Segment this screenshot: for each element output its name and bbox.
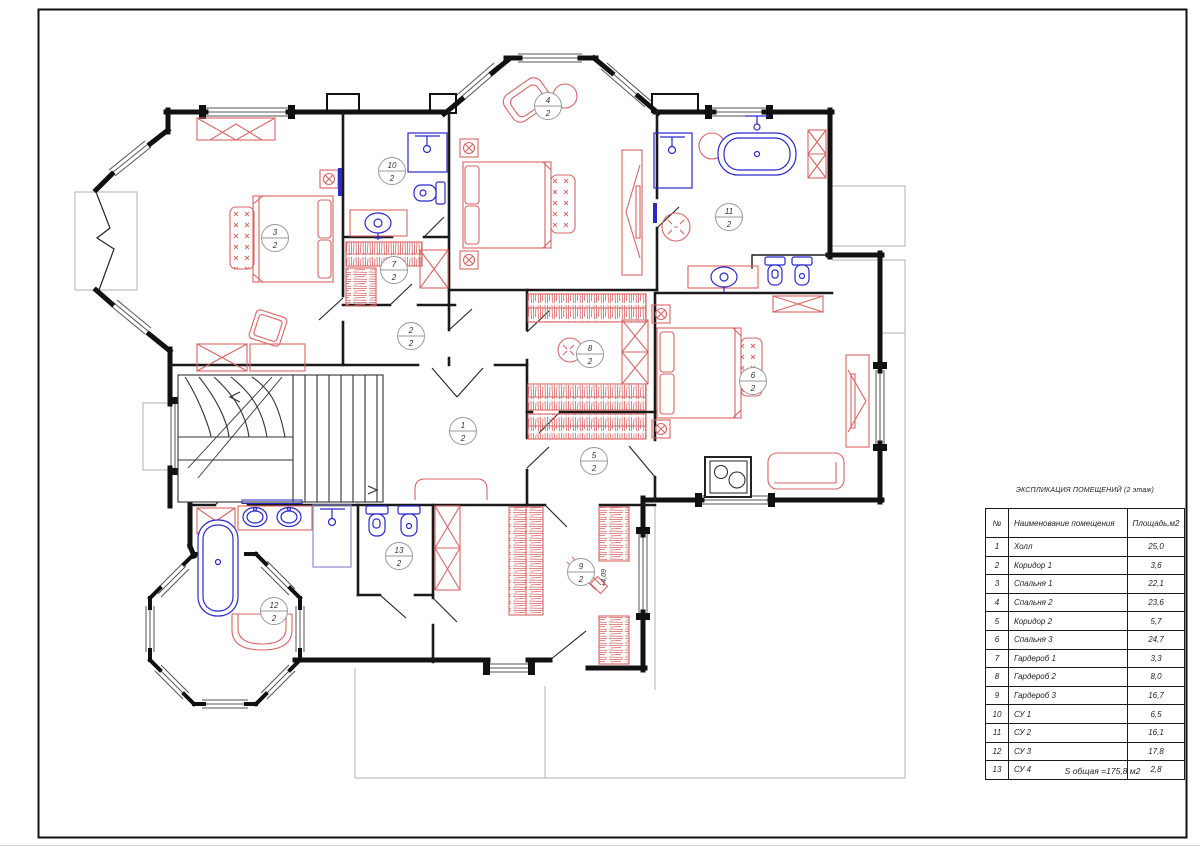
desk-bedroom1 <box>197 344 305 371</box>
svg-text:2: 2 <box>591 464 597 473</box>
legend-col-name: Наименование помещения <box>1009 509 1128 537</box>
room-num: 4 <box>986 594 1009 612</box>
legend-row-2: 2 Коридор 1 3,6 <box>986 556 1184 575</box>
tv-unit-bedroom2 <box>622 150 642 275</box>
room-num: 2 <box>986 557 1009 575</box>
svg-text:1: 1 <box>461 421 465 430</box>
room-num: 10 <box>986 705 1009 723</box>
room-num: 3 <box>986 575 1009 593</box>
counter-su1 <box>350 210 407 236</box>
svg-text:2: 2 <box>271 614 277 623</box>
svg-text:2: 2 <box>726 220 732 229</box>
room-marker-8: 82 <box>577 341 604 368</box>
room-marker-3: 32 <box>262 225 289 252</box>
svg-text:5: 5 <box>592 451 597 460</box>
svg-text:3: 3 <box>273 228 278 237</box>
room-num: 13 <box>986 761 1009 779</box>
svg-text:2: 2 <box>408 339 414 348</box>
svg-text:6: 6 <box>751 371 756 380</box>
legend-row-3: 3 Спальня 1 22,1 <box>986 574 1184 593</box>
room-name: СУ 3 <box>1009 743 1128 761</box>
room-marker-13: 132 <box>386 543 413 570</box>
bathtub-su3 <box>198 520 238 616</box>
nightstand-bedroom1 <box>320 170 338 188</box>
toilet-su4 <box>366 506 388 536</box>
legend-row-5: 5 Коридор 2 5,7 <box>986 611 1184 630</box>
legend-row-1: 1 Холл 25,0 <box>986 537 1184 556</box>
room-name: СУ 1 <box>1009 705 1128 723</box>
svg-text:2: 2 <box>587 357 593 366</box>
legend-row-9: 9 Гардероб 3 16,7 <box>986 686 1184 705</box>
svg-text:2: 2 <box>389 174 395 183</box>
room-name: Гардероб 1 <box>1009 650 1128 668</box>
mirror-su2 <box>653 203 657 223</box>
room-area: 3,6 <box>1128 561 1184 570</box>
bathtub-su2 <box>718 133 796 175</box>
room-marker-7: 72 <box>381 257 408 284</box>
legend-header-row: № Наименование помещения Площадь,м2 <box>986 509 1184 537</box>
rug-bedroom2 <box>551 175 575 233</box>
cabinet-x-su2 <box>808 130 826 178</box>
legend-row-4: 4 Спальня 2 23,6 <box>986 593 1184 612</box>
svg-text:2: 2 <box>391 273 397 282</box>
room-name: СУ 2 <box>1009 724 1128 742</box>
room-name: Гардероб 2 <box>1009 668 1128 686</box>
legend-col-area: Площадь,м2 <box>1128 519 1184 528</box>
cabinet-x-wardrobe1 <box>420 250 448 288</box>
svg-text:2: 2 <box>460 434 466 443</box>
room-num: 9 <box>986 687 1009 705</box>
room-marker-1: 12 <box>450 418 477 445</box>
legend-title: ЭКСПЛИКАЦИЯ ПОМЕЩЕНИЙ (2 этаж) <box>985 487 1185 494</box>
legend-table: № Наименование помещения Площадь,м2 1 Хо… <box>985 508 1185 780</box>
room-name: Спальня 2 <box>1009 594 1128 612</box>
room-name: Спальня 3 <box>1009 631 1128 649</box>
room-area: 6,5 <box>1128 710 1184 719</box>
room-marker-2: 22 <box>398 323 425 350</box>
tv-unit-bedroom3 <box>846 355 869 447</box>
dresser-bedroom1 <box>197 118 275 140</box>
svg-text:2: 2 <box>396 559 402 568</box>
svg-text:2: 2 <box>408 326 414 335</box>
svg-text:2: 2 <box>545 109 551 118</box>
rug-bedroom1 <box>230 207 254 269</box>
room-name: Гардероб 3 <box>1009 687 1128 705</box>
svg-text:10: 10 <box>388 161 397 170</box>
room-area: 22,1 <box>1128 579 1184 588</box>
room-name: Спальня 1 <box>1009 575 1128 593</box>
svg-text:2: 2 <box>272 241 278 250</box>
legend-row-12: 12 СУ 3 17,8 <box>986 742 1184 761</box>
legend-row-11: 11 СУ 2 16,1 <box>986 723 1184 742</box>
room-marker-12: 122 <box>261 598 288 625</box>
legend-row-6: 6 Спальня 3 24,7 <box>986 630 1184 649</box>
svg-text:8: 8 <box>588 344 593 353</box>
room-marker-10: 102 <box>379 158 406 185</box>
room-area: 3,3 <box>1128 654 1184 663</box>
drawing-sheet: 12 22 32 42 52 62 72 82 <box>0 0 1200 848</box>
room-area: 16,1 <box>1128 728 1184 737</box>
shower-su3 <box>313 505 351 567</box>
total-area-label: S общая =175,8 м2 <box>1020 766 1185 776</box>
chair-bedroom1 <box>248 309 288 347</box>
room-num: 1 <box>986 538 1009 556</box>
shower-su1 <box>408 133 447 172</box>
toilet-su2 <box>765 257 785 285</box>
shower-drain-su2 <box>662 213 690 241</box>
toilet-su1 <box>414 182 445 204</box>
room-marker-6: 62 <box>740 368 767 395</box>
room-marker-11: 112 <box>716 204 743 231</box>
room-name: Коридор 2 <box>1009 612 1128 630</box>
stairs <box>178 375 383 502</box>
sink-su3-right <box>277 508 301 527</box>
nightstand-bedroom2-a <box>460 139 478 157</box>
legend-row-7: 7 Гардероб 1 3,3 <box>986 649 1184 668</box>
cabinet-x-wardrobe2 <box>622 320 648 384</box>
counter-su2 <box>688 266 758 288</box>
wall-break-symbol <box>96 192 114 290</box>
room-name: Холл <box>1009 538 1128 556</box>
nightstand-bedroom2-b <box>460 251 478 269</box>
sofa-bedroom3 <box>768 453 844 489</box>
room-num: 12 <box>986 743 1009 761</box>
room-num: 11 <box>986 724 1009 742</box>
mixer-su2-wall <box>745 116 769 130</box>
bench-hall <box>415 479 487 500</box>
room-num: 5 <box>986 612 1009 630</box>
svg-text:12: 12 <box>270 601 279 610</box>
room-marker-9: 92 <box>568 559 595 586</box>
svg-text:4: 4 <box>546 96 551 105</box>
legend-col-num: № <box>986 509 1009 537</box>
room-name: Коридор 1 <box>1009 557 1128 575</box>
cabinet-x-bedroom3-cross <box>773 296 823 312</box>
cabinet-x-wardrobe3 <box>435 506 460 590</box>
room-area: 8,0 <box>1128 672 1184 681</box>
rack-wardrobe1-left <box>346 268 376 306</box>
legend-row-8: 8 Гардероб 2 8,0 <box>986 667 1184 686</box>
room-marker-4: 42 <box>535 93 562 120</box>
svg-text:2: 2 <box>578 575 584 584</box>
room-area: 16,7 <box>1128 691 1184 700</box>
room-area: 17,8 <box>1128 747 1184 756</box>
room-num: 6 <box>986 631 1009 649</box>
bidet-su4 <box>398 506 420 536</box>
svg-text:7: 7 <box>392 260 397 269</box>
shower-su2 <box>654 133 692 188</box>
legend-row-10: 10 СУ 1 6,5 <box>986 704 1184 723</box>
bed-bedroom3 <box>657 328 741 418</box>
room-num: 8 <box>986 668 1009 686</box>
room-area: 24,7 <box>1128 635 1184 644</box>
svg-text:9: 9 <box>579 562 584 571</box>
room-marker-5: 52 <box>581 448 608 475</box>
rack-wardrobe3-se <box>599 616 629 664</box>
svg-text:2: 2 <box>750 384 756 393</box>
svg-text:13: 13 <box>395 546 404 555</box>
bidet-su2 <box>792 257 812 285</box>
room-area: 23,6 <box>1128 598 1184 607</box>
sink-su3-left <box>243 508 267 527</box>
mirror-bedroom1 <box>338 168 342 196</box>
bed-bedroom2 <box>463 162 551 248</box>
elevation-label: +4,09 <box>601 569 608 587</box>
room-num: 7 <box>986 650 1009 668</box>
svg-text:11: 11 <box>725 207 733 216</box>
rack-wardrobe3-ne <box>599 507 629 561</box>
room-area: 5,7 <box>1128 617 1184 626</box>
room-area: 25,0 <box>1128 542 1184 551</box>
fireplace <box>705 457 751 497</box>
